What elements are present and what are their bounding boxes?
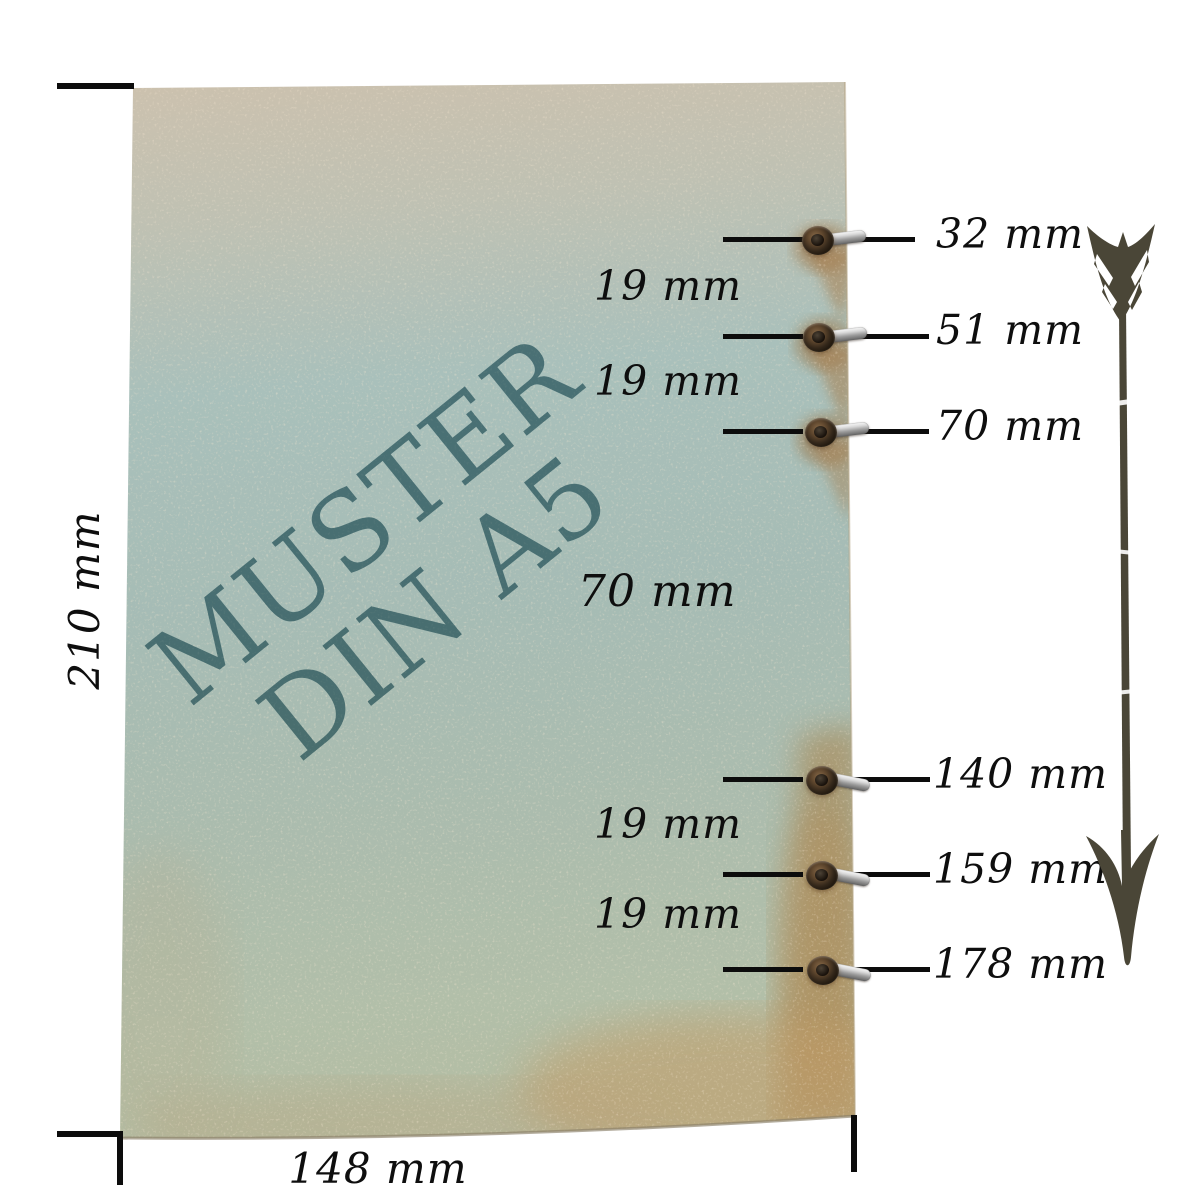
eyelet-ring-icon (803, 323, 835, 352)
eyelet-grommet-5 (806, 861, 876, 897)
tick-top-left (57, 83, 134, 89)
width-dimension-label: 148 mm (278, 1144, 478, 1193)
eyelet-grommet-3 (805, 418, 875, 454)
diagram-canvas: MUSTER DIN A5 32 mm 51 mm 70 mm 140 m (0, 0, 1200, 1200)
spacing-label-2: 19 mm (594, 357, 742, 405)
spacing-label-1: 19 mm (594, 262, 742, 310)
spacing-label-3: 70 mm (578, 566, 736, 617)
eyelet-ring-icon (805, 418, 837, 447)
hole-label-1: 32 mm (936, 210, 1084, 258)
eyelet-ring-icon (802, 226, 834, 255)
measure-line-left-2 (723, 334, 803, 339)
measure-line-left-4 (723, 777, 803, 782)
hole-label-3: 70 mm (936, 402, 1084, 450)
eyelet-ring-icon (807, 956, 839, 985)
spacing-label-5: 19 mm (594, 890, 742, 938)
eyelet-ring-icon (806, 766, 838, 795)
eyelet-grommet-6 (807, 956, 877, 992)
eyelet-grommet-1 (802, 226, 872, 262)
hole-label-2: 51 mm (936, 306, 1084, 354)
eyelet-ring-icon (806, 861, 838, 890)
tick-bottom-right-vertical (851, 1115, 857, 1172)
measure-line-left-5 (723, 872, 803, 877)
eyelet-grommet-2 (803, 323, 873, 359)
measure-line-left-3 (723, 429, 803, 434)
measure-line-left-6 (723, 967, 803, 972)
height-dimension-label: 210 mm (60, 500, 108, 700)
down-arrow-icon (1075, 220, 1170, 980)
tick-bottom-left-horizontal (57, 1131, 121, 1137)
spacing-label-4: 19 mm (594, 800, 742, 848)
measure-line-left-1 (723, 237, 803, 242)
tick-bottom-left-vertical (117, 1131, 123, 1185)
eyelet-grommet-4 (806, 766, 876, 802)
